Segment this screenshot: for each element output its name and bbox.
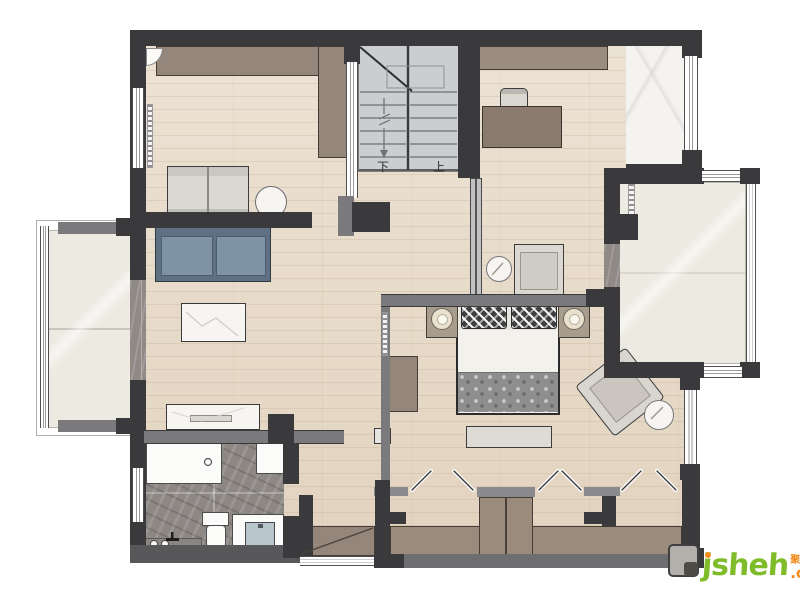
watermark: jsheh 聚设汇 .com	[664, 541, 800, 591]
watermark-suffix: .com	[790, 566, 800, 581]
stair-arrow-icon	[379, 98, 390, 150]
floor-plan-canvas: 下 上 jsheh 聚设汇 .com	[0, 0, 800, 594]
stair-down-label: 下	[377, 161, 389, 173]
bathtub-drain	[205, 459, 212, 466]
watermark-text: jsheh 聚设汇 .com	[702, 551, 800, 581]
marble-vein	[172, 408, 244, 421]
watermark-logo-inner	[684, 562, 698, 576]
marble-vein	[186, 312, 238, 336]
sink-faucet-icon	[258, 524, 263, 528]
faucet-icon	[166, 532, 179, 541]
stair-diagonal	[360, 47, 412, 91]
side-table-detail	[492, 263, 503, 275]
stair-up-label: 上	[433, 161, 445, 173]
side-table-detail	[651, 407, 663, 419]
plan-linework	[0, 0, 800, 594]
watermark-logo-icon	[668, 544, 699, 577]
watermark-brand: jsheh	[701, 551, 789, 581]
folding-door-icon	[412, 471, 676, 490]
watermark-j-dot	[705, 552, 711, 558]
nook-diagonal	[301, 528, 373, 554]
